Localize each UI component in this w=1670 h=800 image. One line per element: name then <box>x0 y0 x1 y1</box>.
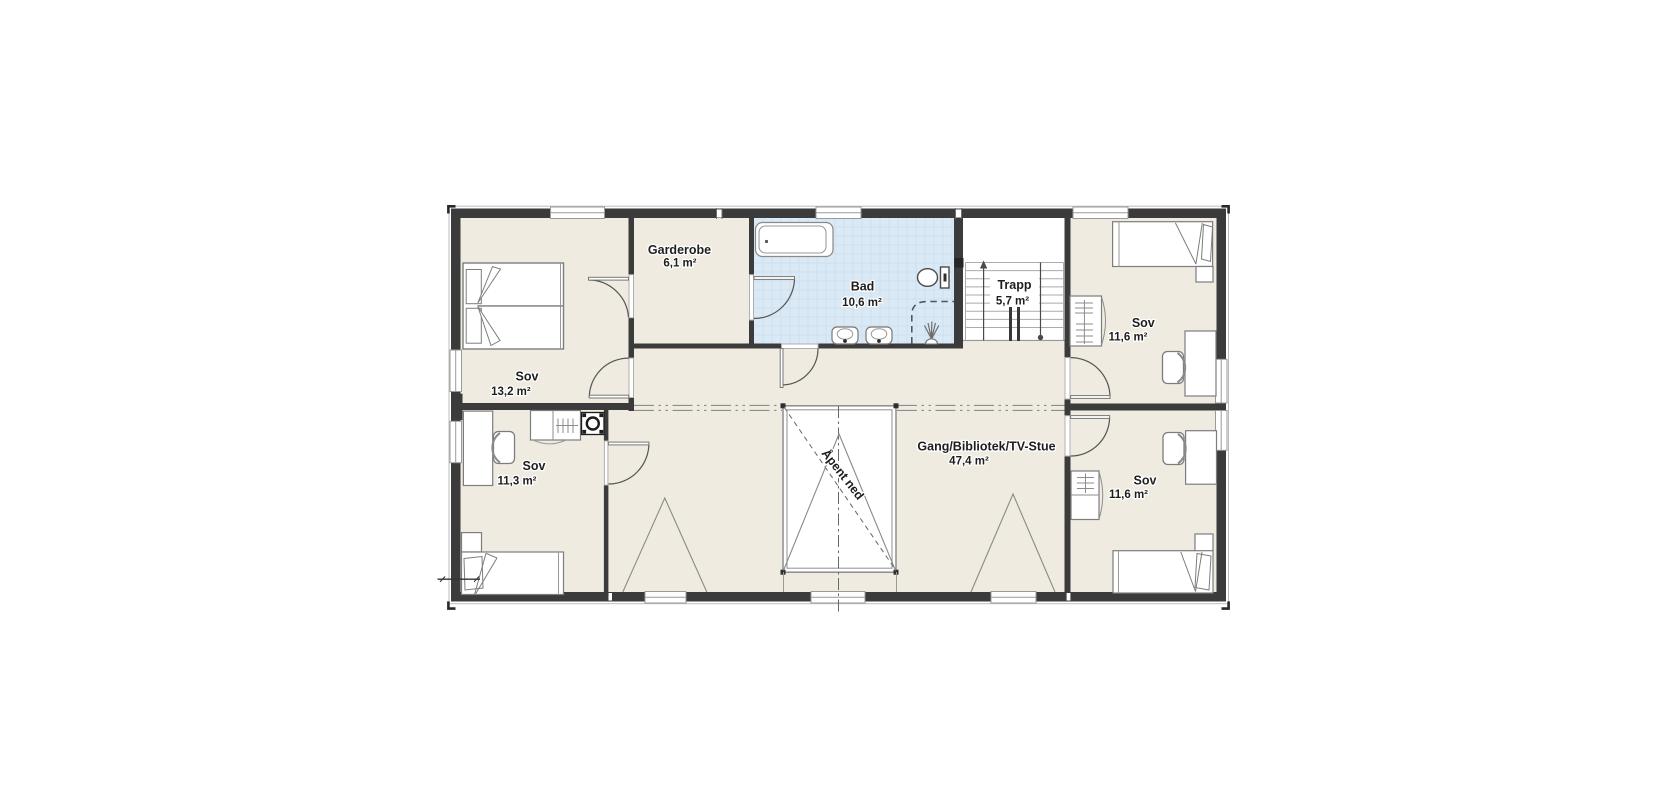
svg-text:Sov: Sov <box>1132 316 1155 330</box>
svg-text:47,4 m²: 47,4 m² <box>949 455 989 467</box>
svg-text:11,6 m²: 11,6 m² <box>1109 332 1148 344</box>
svg-text:11,3 m²: 11,3 m² <box>498 476 537 488</box>
svg-text:Sov: Sov <box>523 459 546 473</box>
svg-text:10,6 m²: 10,6 m² <box>842 297 882 309</box>
svg-text:Bad: Bad <box>851 280 875 294</box>
svg-text:5,7 m²: 5,7 m² <box>996 296 1029 308</box>
svg-text:Gang/Bibliotek/TV-Stue: Gang/Bibliotek/TV-Stue <box>917 440 1055 454</box>
svg-text:Garderobe: Garderobe <box>648 243 711 257</box>
svg-text:13,2 m²: 13,2 m² <box>491 386 531 398</box>
svg-text:11,6 m²: 11,6 m² <box>1109 489 1148 501</box>
svg-text:Sov: Sov <box>516 370 539 384</box>
svg-text:6,1 m²: 6,1 m² <box>663 257 696 269</box>
svg-text:Trapp: Trapp <box>997 278 1031 292</box>
svg-text:Sov: Sov <box>1134 474 1157 488</box>
